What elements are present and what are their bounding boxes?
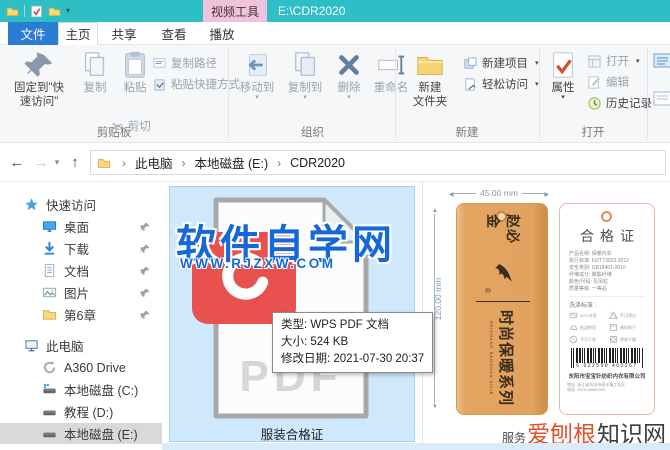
copy-button[interactable]: 复制: [76, 47, 114, 95]
copy-to-button[interactable]: 复制到: [282, 47, 328, 100]
label: 历史记录: [606, 95, 652, 111]
label: 删除: [338, 81, 361, 100]
paste-icon: [120, 50, 150, 80]
file-name[interactable]: 服装合格证: [169, 424, 415, 443]
tooltip-size: 大小: 524 KB: [281, 334, 424, 351]
window-title: E:\CDR2020: [278, 0, 345, 22]
folder-icon: [97, 156, 111, 170]
toolbar-separator: [24, 5, 25, 17]
back-button[interactable]: [6, 151, 28, 173]
group-label-clipboard: 剪贴板: [0, 124, 228, 140]
address-line: 电话: 0579-86560000: [567, 387, 647, 392]
breadcrumb-this-pc[interactable]: 此电脑: [133, 153, 175, 172]
group-separator: [395, 49, 396, 138]
sidebar-item-drive-d[interactable]: 教程 (D:): [0, 401, 162, 422]
arrow-down-icon: ▼: [432, 404, 438, 410]
info-line: 颜色/尺码: 见吊粒: [569, 279, 645, 286]
tumble-dry-icon: [609, 335, 618, 344]
breadcrumb-cdr2020[interactable]: CDR2020: [288, 156, 347, 170]
label: A360 Drive: [64, 361, 126, 375]
open-icon: [587, 54, 602, 69]
sidebar-item-documents[interactable]: 文档: [0, 260, 162, 281]
label: 本地磁盘 (C:): [64, 380, 138, 399]
move-to-icon: [242, 50, 272, 80]
title-bar: ▾ 视频工具 E:\CDR2020: [0, 0, 670, 22]
recent-locations-chevron-icon[interactable]: [50, 151, 64, 173]
context-tab-video-tools[interactable]: 视频工具: [203, 0, 267, 22]
watermark-site-url: WWW.RJZXW.COM: [180, 256, 335, 271]
height-value: 120.00 mm: [433, 267, 443, 331]
ribbon-group-new: 新建文件夹 新建项目 轻松访问 新建: [397, 45, 537, 142]
copy-path-button[interactable]: 复制路径: [152, 54, 217, 72]
label: 此电脑: [46, 336, 84, 355]
label: 复制路径: [171, 55, 217, 71]
properties-icon: [548, 50, 578, 80]
tab-home[interactable]: 主页: [58, 22, 98, 45]
breadcrumb-chevron-icon: [115, 156, 133, 170]
tab-play[interactable]: 播放: [202, 22, 242, 45]
label: 粘贴: [124, 81, 147, 95]
copy-to-icon: [290, 50, 320, 80]
label: 悬挂晾干: [620, 325, 636, 331]
new-item-button[interactable]: 新建项目: [463, 54, 539, 72]
sidebar-item-a360-drive[interactable]: A360 Drive: [0, 357, 162, 378]
arrow-right-icon: [544, 188, 549, 198]
tag-hole: [601, 211, 612, 222]
info-line: 产品名称: 保暖内衣: [569, 251, 645, 258]
label: 移动到: [240, 81, 275, 100]
download-arrow-icon: [42, 241, 57, 256]
ribbon-group-clipboard: 固定到"快速访问" 复制 粘贴 剪切 复制路径 粘贴快捷方式 剪: [0, 45, 228, 142]
desktop-icon: [42, 219, 57, 234]
open-button[interactable]: 打开: [587, 52, 640, 70]
select-none-icon[interactable]: [653, 91, 670, 106]
properties-check-icon[interactable]: [30, 5, 43, 18]
label: 编辑: [606, 74, 629, 90]
label: 不可漂白: [620, 313, 636, 319]
label: 新建文件夹: [413, 81, 448, 109]
bird-logo-icon: [491, 261, 515, 285]
sidebar-item-desktop[interactable]: 桌面: [0, 216, 162, 237]
hang-dry-icon: [609, 323, 618, 332]
breadcrumb-chevron-icon: [270, 156, 288, 170]
certificate-title: 合格证: [560, 226, 654, 246]
delete-x-icon: [334, 50, 364, 80]
group-separator: [228, 49, 229, 138]
pin-icon: [140, 266, 150, 276]
tag-divider: [476, 301, 530, 302]
select-all-icon[interactable]: [653, 53, 670, 68]
dimension-line: [522, 193, 544, 194]
label: 复制到: [288, 81, 323, 100]
group-label-open: 打开: [541, 124, 645, 140]
sidebar-item-drive-c[interactable]: 本地磁盘 (C:): [0, 379, 162, 400]
pin-icon: [140, 310, 150, 320]
paste-shortcut-button[interactable]: 粘贴快捷方式: [152, 75, 240, 93]
delete-button[interactable]: 删除: [332, 47, 366, 100]
series-text-block: 时尚保暖系列 SHISHANG BAONUAN XILIE: [489, 310, 517, 406]
label: 不可干洗: [580, 337, 596, 343]
os-disk-icon: [42, 382, 57, 397]
edit-pencil-icon: [587, 75, 602, 90]
file-list-area: PDF 软件自学网 WWW.RJZXW.COM 类型: WPS PDF 文档 大…: [162, 182, 422, 450]
breadcrumb-drive-e[interactable]: 本地磁盘 (E:): [193, 153, 271, 172]
customize-qat-chevron-icon[interactable]: ▾: [66, 7, 70, 15]
properties-button[interactable]: 属性: [543, 47, 583, 100]
wash-item: 常规干燥: [609, 335, 645, 344]
computer-icon: [24, 338, 39, 353]
cloud-sync-icon: [42, 360, 57, 375]
label: 固定到"快速访问": [14, 81, 64, 109]
wash-item: 低温熨烫: [569, 323, 605, 332]
group-label-organize: 组织: [230, 124, 395, 140]
label: 文档: [64, 261, 89, 280]
pin-icon: [140, 222, 150, 232]
no-dry-clean-icon: [569, 335, 578, 344]
registered-mark: ®: [483, 288, 490, 293]
wash-item: 不可干洗: [569, 335, 605, 344]
easy-access-icon: [463, 77, 478, 92]
copy-icon: [80, 50, 110, 80]
ribbon-group-open: 属性 打开 编辑 历史记录 打开: [541, 45, 645, 142]
quick-access-toolbar: ▾: [6, 0, 70, 22]
preview-pane: 45.00 mm ▲ ▼ 120.00 mm 赵必金 ® 时尚保暖系列 SHIS…: [422, 182, 670, 450]
move-to-button[interactable]: 移动到: [234, 47, 280, 100]
width-value: 45.00 mm: [476, 188, 522, 198]
info-line: 安全类别: GB18401-2010: [569, 265, 645, 272]
file-tooltip: 类型: WPS PDF 文档 大小: 524 KB 修改日期: 2021-07-…: [272, 312, 433, 373]
address-bar: 此电脑 本地磁盘 (E:) CDR2020: [0, 143, 670, 182]
copy-path-icon: [152, 56, 167, 71]
tag-front-content: 赵必金 ® 时尚保暖系列 SHISHANG BAONUAN XILIE: [467, 214, 539, 406]
wash-icons-grid: 40°C水洗 不可漂白 低温熨烫 悬挂晾干 不可干洗: [569, 311, 645, 344]
edit-button[interactable]: 编辑: [587, 73, 629, 91]
paste-shortcut-icon: [152, 77, 167, 92]
label: 复制: [84, 81, 107, 95]
folder-icon: [42, 307, 57, 322]
tag-back-preview: 合格证 产品名称: 保暖内衣 执行标准: FZ/T73022-2012 安全类别…: [559, 203, 655, 415]
up-button[interactable]: [64, 151, 86, 173]
history-clock-icon: [587, 96, 602, 111]
pushpin-icon: [24, 50, 54, 80]
wash-item: 悬挂晾干: [609, 323, 645, 332]
breadcrumb-chevron-icon: [175, 156, 193, 170]
width-dimension: 45.00 mm: [449, 188, 549, 198]
no-bleach-icon: [609, 311, 618, 320]
disk-icon: [42, 426, 57, 441]
series-pinyin: SHISHANG BAONUAN XILIE: [489, 321, 494, 396]
info-line: 纤维成分: 聚酯纤维: [569, 272, 645, 279]
sidebar-item-this-pc[interactable]: 此电脑: [0, 335, 162, 356]
company-address: 地址: 浙江省东阳市画水镇工业区 电话: 0579-86560000: [567, 382, 647, 392]
group-separator: [647, 49, 648, 138]
washtub-icon: [569, 311, 578, 320]
forward-button[interactable]: [30, 151, 52, 173]
label: 轻松访问: [482, 76, 528, 92]
star-icon: [24, 197, 39, 212]
dimension-line: [454, 193, 476, 194]
easy-access-button[interactable]: 轻松访问: [463, 75, 539, 93]
label: 属性: [552, 81, 575, 100]
sidebar-item-drive-e[interactable]: 本地磁盘 (E:): [0, 423, 162, 444]
label: 教程 (D:): [64, 402, 113, 421]
label: 下载: [64, 239, 89, 258]
document-icon: [42, 263, 57, 278]
bottom-highlight-strip: [162, 443, 670, 450]
label: 40°C水洗: [580, 313, 597, 319]
breadcrumb[interactable]: 此电脑 本地磁盘 (E:) CDR2020: [90, 150, 666, 175]
tooltip-type: 类型: WPS PDF 文档: [281, 317, 424, 334]
label: 图片: [64, 283, 89, 302]
paste-button[interactable]: 粘贴: [116, 47, 154, 95]
label: 第6章: [64, 305, 96, 324]
new-folder-icon: [415, 50, 445, 80]
sidebar-item-pictures[interactable]: 图片: [0, 282, 162, 303]
group-separator: [539, 49, 540, 138]
wash-item: 不可漂白: [609, 311, 645, 320]
brand-logo: 赵必金 ®: [483, 214, 523, 293]
barcode-digits: 6 922598 400267: [574, 363, 640, 369]
wash-standard-title: 洗涤标准 :: [569, 296, 645, 309]
sidebar-item-chapter6[interactable]: 第6章: [0, 304, 162, 325]
info-line: 执行标准: FZ/T73022-2012: [569, 258, 645, 265]
group-label-new: 新建: [397, 124, 537, 140]
new-folder-button[interactable]: 新建文件夹: [403, 47, 457, 109]
tab-view[interactable]: 查看: [154, 22, 194, 45]
label: 新建项目: [482, 55, 528, 71]
label: 本地磁盘 (E:): [64, 424, 138, 443]
pin-to-quick-access-button[interactable]: 固定到"快速访问": [4, 47, 74, 109]
explorer-window: ▾ 视频工具 E:\CDR2020 文件 主页 共享 查看 播放 固定到"快速访…: [0, 0, 670, 450]
label: 常规干燥: [620, 337, 636, 343]
history-button[interactable]: 历史记录: [587, 94, 652, 112]
folder-icon[interactable]: [6, 5, 19, 18]
new-item-icon: [463, 56, 478, 71]
sidebar-item-quick-access[interactable]: 快速访问: [0, 194, 162, 215]
ribbon: 固定到"快速访问" 复制 粘贴 剪切 复制路径 粘贴快捷方式 剪: [0, 45, 670, 143]
label: 桌面: [64, 217, 89, 236]
brand-name: 赵必金: [483, 214, 523, 258]
disk-icon: [42, 404, 57, 419]
folder-icon[interactable]: [48, 5, 61, 18]
label: 低温熨烫: [580, 325, 596, 331]
label: 打开: [606, 53, 629, 69]
ribbon-tab-row: 文件 主页 共享 查看 播放: [0, 22, 670, 45]
iron-icon: [569, 323, 578, 332]
ribbon-group-organize: 移动到 复制到 删除 重命名 组织: [230, 45, 395, 142]
tab-share[interactable]: 共享: [104, 22, 144, 45]
sidebar-item-downloads[interactable]: 下载: [0, 238, 162, 259]
series-name: 时尚保暖系列: [496, 310, 517, 406]
tag-front-preview: 赵必金 ® 时尚保暖系列 SHISHANG BAONUAN XILIE: [456, 203, 548, 415]
pictures-icon: [42, 285, 57, 300]
navigation-pane: 快速访问 桌面 下载 文档 图片 第6章 此电脑: [0, 182, 162, 450]
pin-icon: [140, 288, 150, 298]
company-name: 东阳市宝宝针纺织内衣有限公司: [563, 372, 651, 380]
tab-file[interactable]: 文件: [8, 22, 58, 45]
product-info: 产品名称: 保暖内衣 执行标准: FZ/T73022-2012 安全类别: GB…: [569, 251, 645, 293]
label: 快速访问: [46, 195, 96, 214]
pin-icon: [140, 244, 150, 254]
tooltip-modified: 修改日期: 2021-07-30 20:37: [281, 351, 424, 368]
info-line: 质量等级: 一等品: [569, 286, 645, 293]
wash-item: 40°C水洗: [569, 311, 605, 320]
